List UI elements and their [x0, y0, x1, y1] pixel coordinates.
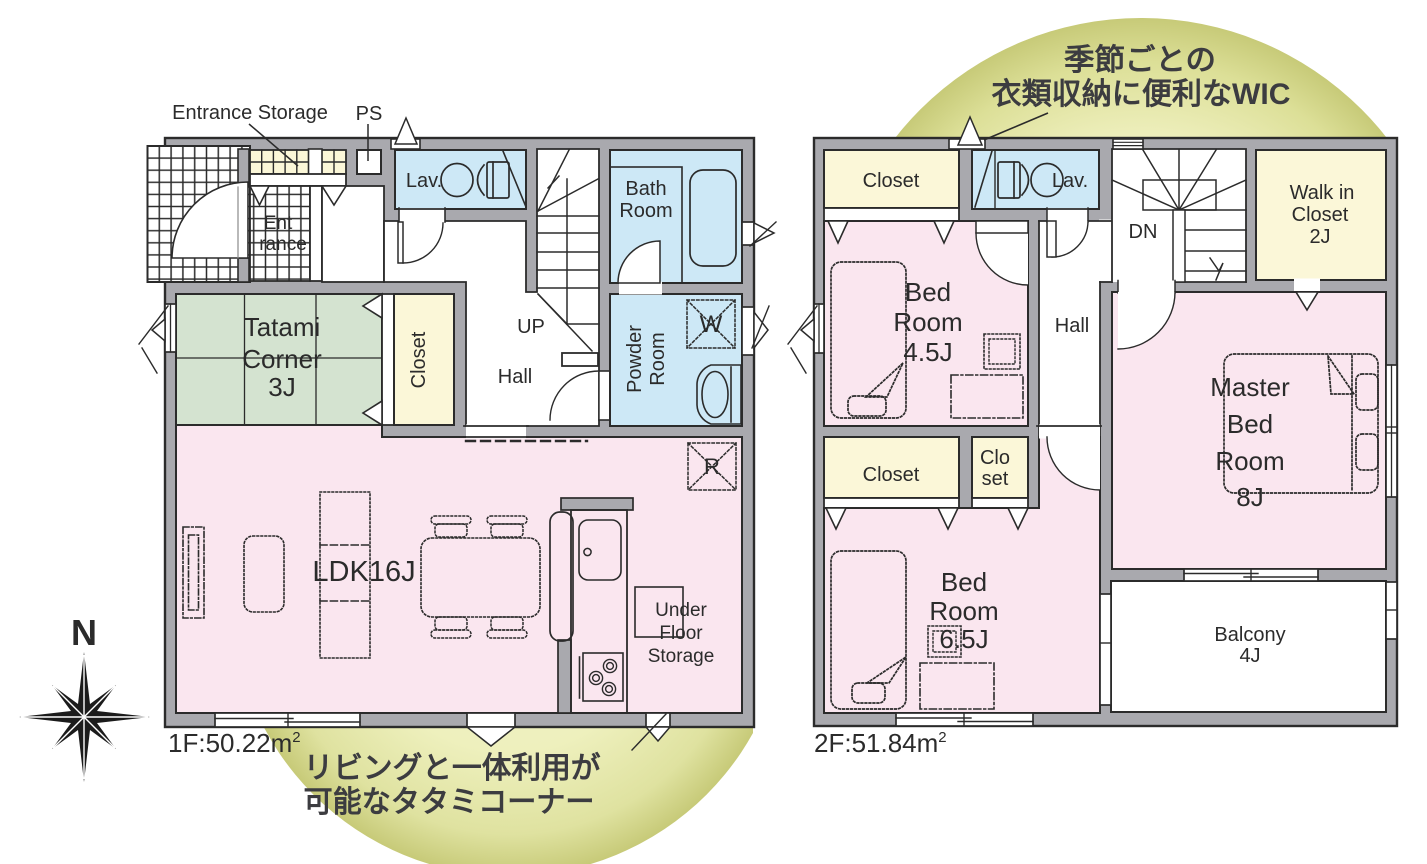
svg-text:Balcony: Balcony — [1214, 624, 1285, 646]
svg-text:2F:51.84m2: 2F:51.84m2 — [814, 728, 947, 758]
svg-text:R: R — [704, 454, 720, 479]
svg-text:Corner: Corner — [242, 344, 322, 374]
svg-text:UP: UP — [517, 316, 545, 338]
svg-text:Walk in: Walk in — [1290, 182, 1355, 204]
svg-text:4J: 4J — [1239, 645, 1260, 667]
svg-text:Closet: Closet — [408, 331, 430, 388]
svg-text:LDK16J: LDK16J — [312, 556, 415, 588]
svg-text:可能なタタミコーナー: 可能なタタミコーナー — [304, 786, 595, 819]
svg-text:N: N — [71, 612, 97, 653]
svg-text:Powder: Powder — [624, 325, 646, 393]
svg-text:Master: Master — [1210, 372, 1290, 402]
svg-text:DN: DN — [1129, 221, 1158, 243]
svg-text:季節ごとの: 季節ごとの — [1064, 43, 1216, 77]
svg-text:Bed: Bed — [941, 567, 987, 597]
svg-text:Bed: Bed — [905, 277, 951, 307]
svg-text:Room: Room — [929, 596, 998, 626]
svg-text:W: W — [700, 311, 723, 338]
svg-text:rance: rance — [259, 234, 307, 255]
svg-text:Closet: Closet — [863, 170, 920, 192]
svg-text:Ent: Ent — [264, 213, 293, 234]
svg-text:Hall: Hall — [1055, 315, 1089, 337]
svg-text:Storage: Storage — [648, 646, 715, 667]
svg-text:3J: 3J — [268, 372, 295, 402]
svg-text:Floor: Floor — [659, 623, 703, 644]
svg-text:Room: Room — [893, 307, 962, 337]
svg-text:Closet: Closet — [1292, 204, 1349, 226]
svg-text:8J: 8J — [1236, 482, 1263, 512]
svg-text:2J: 2J — [1309, 226, 1330, 248]
svg-text:Closet: Closet — [863, 464, 920, 486]
svg-text:6.5J: 6.5J — [939, 624, 988, 654]
svg-text:Tatami: Tatami — [244, 312, 321, 342]
svg-text:Hall: Hall — [498, 366, 532, 388]
svg-text:衣類収納に便利なWIC: 衣類収納に便利なWIC — [992, 78, 1291, 111]
svg-text:Room: Room — [1215, 446, 1284, 476]
svg-text:set: set — [982, 468, 1009, 490]
svg-text:Bed: Bed — [1227, 409, 1273, 439]
svg-text:Lav.: Lav. — [1052, 170, 1088, 192]
svg-text:リビングと一体利用が: リビングと一体利用が — [304, 751, 601, 785]
svg-text:Room: Room — [619, 200, 672, 222]
svg-text:4.5J: 4.5J — [903, 337, 952, 367]
svg-text:Lav.: Lav. — [406, 170, 442, 192]
svg-text:Clo: Clo — [980, 447, 1010, 469]
svg-text:Entrance Storage: Entrance Storage — [172, 102, 328, 124]
svg-text:Bath: Bath — [625, 178, 666, 200]
svg-text:PS: PS — [356, 103, 383, 125]
svg-text:1F:50.22m2: 1F:50.22m2 — [168, 728, 301, 758]
svg-text:Room: Room — [647, 332, 669, 385]
svg-text:Under: Under — [655, 600, 707, 621]
